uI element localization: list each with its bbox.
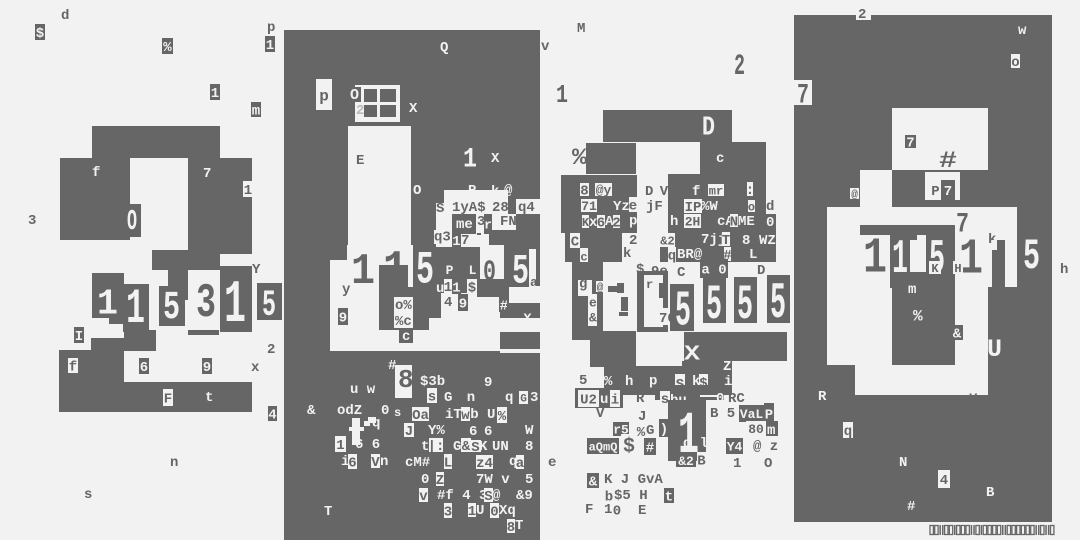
svg-text:5: 5 xyxy=(770,276,786,333)
svg-text:N: N xyxy=(899,455,907,471)
svg-text:0: 0 xyxy=(716,391,724,407)
svg-text:R: R xyxy=(636,391,645,407)
svg-text:G: G xyxy=(646,423,654,439)
svg-text:8: 8 xyxy=(580,184,588,200)
svg-text:%: % xyxy=(913,308,923,326)
svg-text:0: 0 xyxy=(613,504,621,520)
svg-text:#: # xyxy=(500,299,508,315)
svg-text:#: # xyxy=(388,358,396,374)
svg-text:1: 1 xyxy=(126,281,145,337)
svg-text:u w: u w xyxy=(350,382,376,398)
svg-text:$: $ xyxy=(36,26,44,42)
svg-text:5: 5 xyxy=(929,233,945,286)
svg-text:&: & xyxy=(462,439,471,455)
svg-text:f: f xyxy=(692,184,700,200)
svg-text:i: i xyxy=(724,374,732,390)
svg-text:f: f xyxy=(92,165,100,181)
svg-text:$: $ xyxy=(468,281,476,297)
svg-text:|:: |: xyxy=(428,439,445,455)
svg-text:s: s xyxy=(394,406,401,420)
svg-text:$: $ xyxy=(623,436,635,459)
svg-text:h: h xyxy=(670,214,678,230)
svg-text:6 6: 6 6 xyxy=(355,437,380,453)
svg-text:6: 6 xyxy=(348,456,356,472)
svg-text:O: O xyxy=(413,183,421,199)
svg-text:I: I xyxy=(75,329,83,345)
svg-text:V: V xyxy=(371,455,380,471)
svg-text:x: x xyxy=(251,360,260,376)
svg-text:G: G xyxy=(453,439,461,455)
svg-text:1: 1 xyxy=(863,231,887,288)
svg-text:D: D xyxy=(702,114,715,144)
svg-text:E: E xyxy=(356,153,364,169)
svg-text:UN: UN xyxy=(492,439,509,455)
svg-text:1: 1 xyxy=(266,38,274,54)
svg-text::: : xyxy=(746,183,754,199)
svg-text:E: E xyxy=(638,503,646,519)
svg-text:3: 3 xyxy=(28,213,36,229)
svg-text:r: r xyxy=(484,218,492,233)
svg-text:iTwb U: iTwb U xyxy=(445,407,495,423)
svg-text:t: t xyxy=(665,490,673,506)
svg-text:RC: RC xyxy=(728,391,745,407)
svg-text:8: 8 xyxy=(507,520,515,536)
svg-text:1: 1 xyxy=(244,183,252,199)
svg-text:VaL: VaL xyxy=(740,407,764,422)
svg-text:3: 3 xyxy=(444,505,452,521)
svg-text:&9: &9 xyxy=(516,488,533,504)
svg-text:G: G xyxy=(520,394,527,406)
svg-text:2: 2 xyxy=(267,342,275,358)
svg-text:@: @ xyxy=(492,488,501,504)
svg-text:B: B xyxy=(986,485,995,501)
svg-text:Z: Z xyxy=(436,473,444,489)
svg-text:O: O xyxy=(764,456,772,472)
svg-text:B: B xyxy=(697,454,706,470)
svg-text:q: q xyxy=(844,424,852,440)
svg-text:c: c xyxy=(580,250,587,264)
svg-text:7: 7 xyxy=(944,184,952,200)
svg-text:D: D xyxy=(757,263,765,279)
svg-text:e: e xyxy=(589,296,597,311)
svg-text:jF: jF xyxy=(646,199,663,215)
svg-text:t: t xyxy=(205,390,213,406)
svg-text:U: U xyxy=(476,503,484,519)
svg-text:%: % xyxy=(572,145,587,171)
svg-text:V: V xyxy=(660,184,669,200)
svg-text:U: U xyxy=(987,335,1002,364)
svg-text:O: O xyxy=(350,87,359,104)
svg-text:6: 6 xyxy=(469,424,477,440)
svg-text:L: L xyxy=(749,247,757,263)
svg-text:s: s xyxy=(428,390,436,406)
svg-text:i: i xyxy=(611,393,619,409)
svg-text:&2: &2 xyxy=(678,454,694,469)
svg-text:2H: 2H xyxy=(685,215,701,230)
svg-text:L: L xyxy=(444,456,452,472)
svg-text:O: O xyxy=(127,205,137,238)
svg-text:n: n xyxy=(170,455,178,471)
svg-text:p: p xyxy=(629,213,637,229)
svg-text:#f 4 3: #f 4 3 xyxy=(437,488,487,504)
svg-text:z4: z4 xyxy=(476,456,493,472)
svg-text:o: o xyxy=(748,200,755,214)
svg-text:Y%: Y% xyxy=(428,423,445,439)
svg-text:@: @ xyxy=(597,283,604,295)
svg-text:cM#: cM# xyxy=(405,455,430,471)
svg-text:5: 5 xyxy=(262,285,276,327)
svg-text:6: 6 xyxy=(484,424,492,440)
svg-text:4: 4 xyxy=(268,408,276,424)
svg-text:9: 9 xyxy=(339,311,347,327)
svg-text:s: s xyxy=(661,392,669,408)
svg-text:FN: FN xyxy=(500,214,517,230)
svg-text:S: S xyxy=(436,201,444,217)
svg-text:3: 3 xyxy=(530,390,538,406)
svg-text:7: 7 xyxy=(203,166,211,182)
svg-text:X: X xyxy=(491,151,500,167)
svg-text:@ z: @ z xyxy=(753,439,778,455)
svg-text:&: & xyxy=(953,327,962,343)
svg-text:T: T xyxy=(324,504,332,520)
svg-text:$3b: $3b xyxy=(420,374,445,390)
svg-text:1: 1 xyxy=(463,144,477,175)
svg-text:9: 9 xyxy=(203,360,211,376)
svg-text:p: p xyxy=(267,20,275,36)
svg-text:0: 0 xyxy=(381,403,389,419)
svg-text:%: % xyxy=(163,40,172,56)
svg-text:aQmQ: aQmQ xyxy=(589,440,618,454)
svg-text:F: F xyxy=(585,502,593,518)
svg-text:g: g xyxy=(579,276,587,292)
svg-text:4: 4 xyxy=(444,295,452,311)
svg-text:a: a xyxy=(516,456,525,472)
svg-text:v: v xyxy=(419,489,428,505)
svg-text:T: T xyxy=(722,233,730,249)
svg-text:Y4: Y4 xyxy=(727,440,743,455)
svg-text:d: d xyxy=(61,8,69,24)
svg-text:q4: q4 xyxy=(518,200,535,216)
svg-text:n: n xyxy=(380,454,388,470)
svg-text:f: f xyxy=(69,360,77,376)
svg-text:1: 1 xyxy=(211,86,219,102)
svg-text:V: V xyxy=(596,406,605,422)
svg-text:1: 1 xyxy=(336,438,344,454)
svg-text:5: 5 xyxy=(1023,232,1040,282)
svg-text:M: M xyxy=(577,21,585,37)
svg-text:Oa: Oa xyxy=(412,408,429,424)
svg-text:2: 2 xyxy=(356,103,364,119)
svg-text:B 5: B 5 xyxy=(710,406,735,422)
svg-text:r: r xyxy=(646,278,653,292)
svg-text:80: 80 xyxy=(748,422,764,437)
svg-text:@y: @y xyxy=(596,183,612,198)
svg-text:h: h xyxy=(625,374,633,390)
svg-text:o%: o% xyxy=(395,298,412,314)
svg-text:5: 5 xyxy=(525,472,533,488)
svg-text:0: 0 xyxy=(490,505,498,521)
svg-text:T: T xyxy=(515,518,523,534)
svg-text:K: K xyxy=(479,439,488,455)
svg-text:Yz: Yz xyxy=(613,199,630,215)
svg-text:1: 1 xyxy=(468,504,476,520)
svg-text:6: 6 xyxy=(597,216,605,232)
svg-text:%c: %c xyxy=(395,314,412,330)
svg-text:w: w xyxy=(1018,23,1027,39)
svg-text:P: P xyxy=(446,263,454,278)
svg-text:C: C xyxy=(677,265,686,281)
svg-text:ME: ME xyxy=(738,214,755,230)
svg-text:C: C xyxy=(571,235,580,251)
svg-text:mr: mr xyxy=(709,184,723,198)
svg-text:d l: d l xyxy=(683,436,708,452)
svg-text:2: 2 xyxy=(858,7,866,23)
svg-text:K J GvA: K J GvA xyxy=(604,472,663,488)
svg-text:9: 9 xyxy=(459,297,467,313)
svg-text:WZ: WZ xyxy=(759,233,776,249)
svg-text:&: & xyxy=(307,403,316,419)
svg-text:c: c xyxy=(402,329,410,345)
svg-text:6: 6 xyxy=(140,360,148,376)
svg-text:71: 71 xyxy=(581,199,597,214)
svg-text:&2: &2 xyxy=(660,234,674,248)
svg-text:7: 7 xyxy=(461,233,469,249)
svg-text:1: 1 xyxy=(452,234,460,250)
svg-text:odZ: odZ xyxy=(337,403,362,419)
svg-text:Y: Y xyxy=(252,262,261,278)
svg-text:F: F xyxy=(164,392,172,408)
svg-text:k: k xyxy=(623,246,631,262)
svg-text:W: W xyxy=(525,423,534,439)
svg-text:1: 1 xyxy=(892,233,908,287)
svg-text:a: a xyxy=(530,275,538,290)
svg-text:h: h xyxy=(1060,262,1068,278)
svg-text:2: 2 xyxy=(734,50,745,84)
svg-text:w: w xyxy=(461,408,470,424)
svg-text:v: v xyxy=(541,39,550,55)
svg-text:%: % xyxy=(604,374,613,390)
svg-text:5: 5 xyxy=(675,284,691,341)
svg-text:7W v: 7W v xyxy=(476,472,510,488)
svg-text:c: c xyxy=(716,151,724,167)
svg-text:IP: IP xyxy=(685,200,702,216)
svg-text:@: @ xyxy=(851,190,858,202)
svg-text:0: 0 xyxy=(766,215,774,231)
svg-text:q: q xyxy=(668,249,676,265)
svg-text:d: d xyxy=(766,199,774,215)
svg-text:X: X xyxy=(409,101,418,117)
svg-text:m: m xyxy=(252,104,260,120)
svg-text:8: 8 xyxy=(525,439,533,455)
svg-text:Q: Q xyxy=(440,40,448,56)
svg-text:1: 1 xyxy=(224,272,246,340)
svg-text:Xq: Xq xyxy=(499,503,516,519)
svg-text:G: G xyxy=(444,390,452,406)
svg-text:n: n xyxy=(467,390,475,406)
svg-text:2: 2 xyxy=(612,216,620,232)
svg-text:#: # xyxy=(646,441,654,457)
svg-text:4: 4 xyxy=(940,473,948,489)
svg-text:D: D xyxy=(645,184,653,200)
svg-text:o: o xyxy=(1011,55,1019,71)
svg-text:m: m xyxy=(767,423,775,439)
svg-text:q3: q3 xyxy=(434,229,451,245)
svg-text:p: p xyxy=(319,87,329,105)
svg-text:s: s xyxy=(84,487,92,503)
svg-text:&: & xyxy=(589,311,597,326)
svg-text:K: K xyxy=(931,262,939,276)
svg-text:me: me xyxy=(456,217,473,233)
svg-text:5: 5 xyxy=(737,277,753,333)
svg-text:8: 8 xyxy=(398,365,414,395)
svg-text:5: 5 xyxy=(512,248,529,296)
svg-text:7: 7 xyxy=(906,136,914,152)
svg-text:P: P xyxy=(931,184,939,200)
svg-text:#: # xyxy=(907,499,915,515)
svg-text:e: e xyxy=(548,455,556,471)
svg-text:1: 1 xyxy=(351,247,375,297)
svg-text:9: 9 xyxy=(484,375,492,391)
svg-text:BR@: BR@ xyxy=(677,247,703,263)
svg-text:#: # xyxy=(939,148,957,174)
svg-text:5: 5 xyxy=(579,373,587,389)
svg-text:): ) xyxy=(660,422,668,438)
svg-text:U2: U2 xyxy=(580,393,597,409)
svg-text:%W: %W xyxy=(701,199,718,215)
svg-text:N: N xyxy=(730,215,738,231)
svg-text:1: 1 xyxy=(556,80,568,110)
svg-text:1: 1 xyxy=(604,502,612,518)
svg-text:L: L xyxy=(469,263,477,278)
svg-text:5: 5 xyxy=(706,277,722,333)
svg-text:7: 7 xyxy=(797,80,809,111)
svg-text:1: 1 xyxy=(733,456,741,472)
svg-text:q: q xyxy=(505,390,513,406)
svg-text:0: 0 xyxy=(421,472,429,488)
svg-text:$5 H: $5 H xyxy=(614,488,648,504)
svg-text:e: e xyxy=(629,199,637,215)
svg-text:&: & xyxy=(589,475,598,491)
svg-text:1: 1 xyxy=(959,232,983,289)
svg-text:Z: Z xyxy=(723,359,731,375)
svg-text:3: 3 xyxy=(196,277,216,331)
svg-text:1: 1 xyxy=(444,280,452,296)
svg-text:%: % xyxy=(498,409,507,425)
svg-text:5: 5 xyxy=(163,286,180,331)
svg-text:J: J xyxy=(405,424,413,440)
svg-text:y: y xyxy=(969,390,978,406)
svg-text:m: m xyxy=(908,282,916,298)
svg-text:y: y xyxy=(342,282,351,298)
svg-text:R: R xyxy=(818,389,827,405)
svg-text:H: H xyxy=(954,262,961,276)
